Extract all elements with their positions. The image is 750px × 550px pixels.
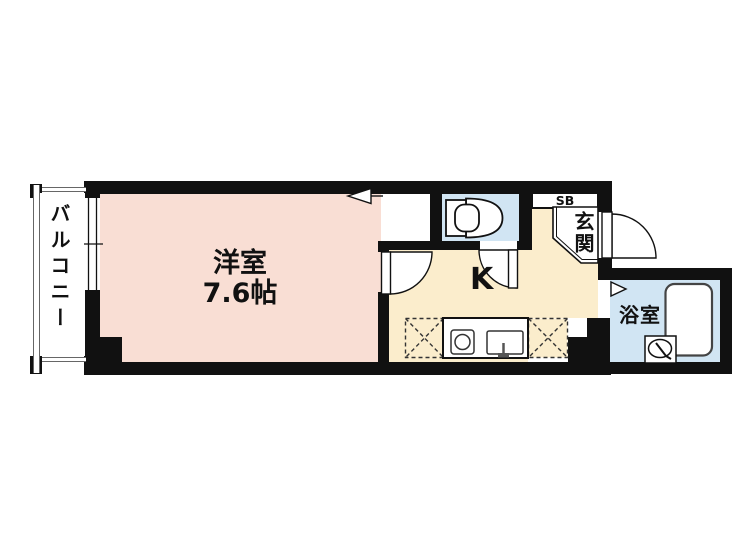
door-leaf <box>509 250 518 288</box>
entrance-door-swing <box>602 212 656 258</box>
western-room-label: 洋室 <box>160 249 320 279</box>
kitchen-counter <box>443 318 528 358</box>
kitchen-sink-icon <box>487 331 523 358</box>
western-room-label-block: 洋室 7.6帖 <box>160 249 320 309</box>
door-swing-arc <box>612 214 656 258</box>
opening-flag-marker <box>348 189 383 204</box>
fixtures-overlay <box>0 0 750 550</box>
room-door-swing <box>382 252 433 294</box>
window-double-line <box>84 198 103 290</box>
door-swing-arc <box>390 252 432 294</box>
washbasin-icon <box>645 336 676 363</box>
entrance-label: 玄関 <box>573 211 593 255</box>
kitchen-label: K <box>470 265 493 295</box>
balcony-label: バルコニー <box>49 203 69 333</box>
bathroom-label: 浴室 <box>619 305 661 325</box>
western-room-size: 7.6帖 <box>160 279 320 309</box>
folding-door-marker <box>611 282 626 296</box>
dashed-appliance-space <box>406 319 444 358</box>
floor-plan: SB <box>0 0 750 550</box>
stove-burner-icon <box>451 330 474 354</box>
door-leaf <box>382 252 391 294</box>
dashed-appliance-space <box>529 319 568 358</box>
door-leaf <box>602 212 612 258</box>
toilet-icon <box>446 199 503 238</box>
